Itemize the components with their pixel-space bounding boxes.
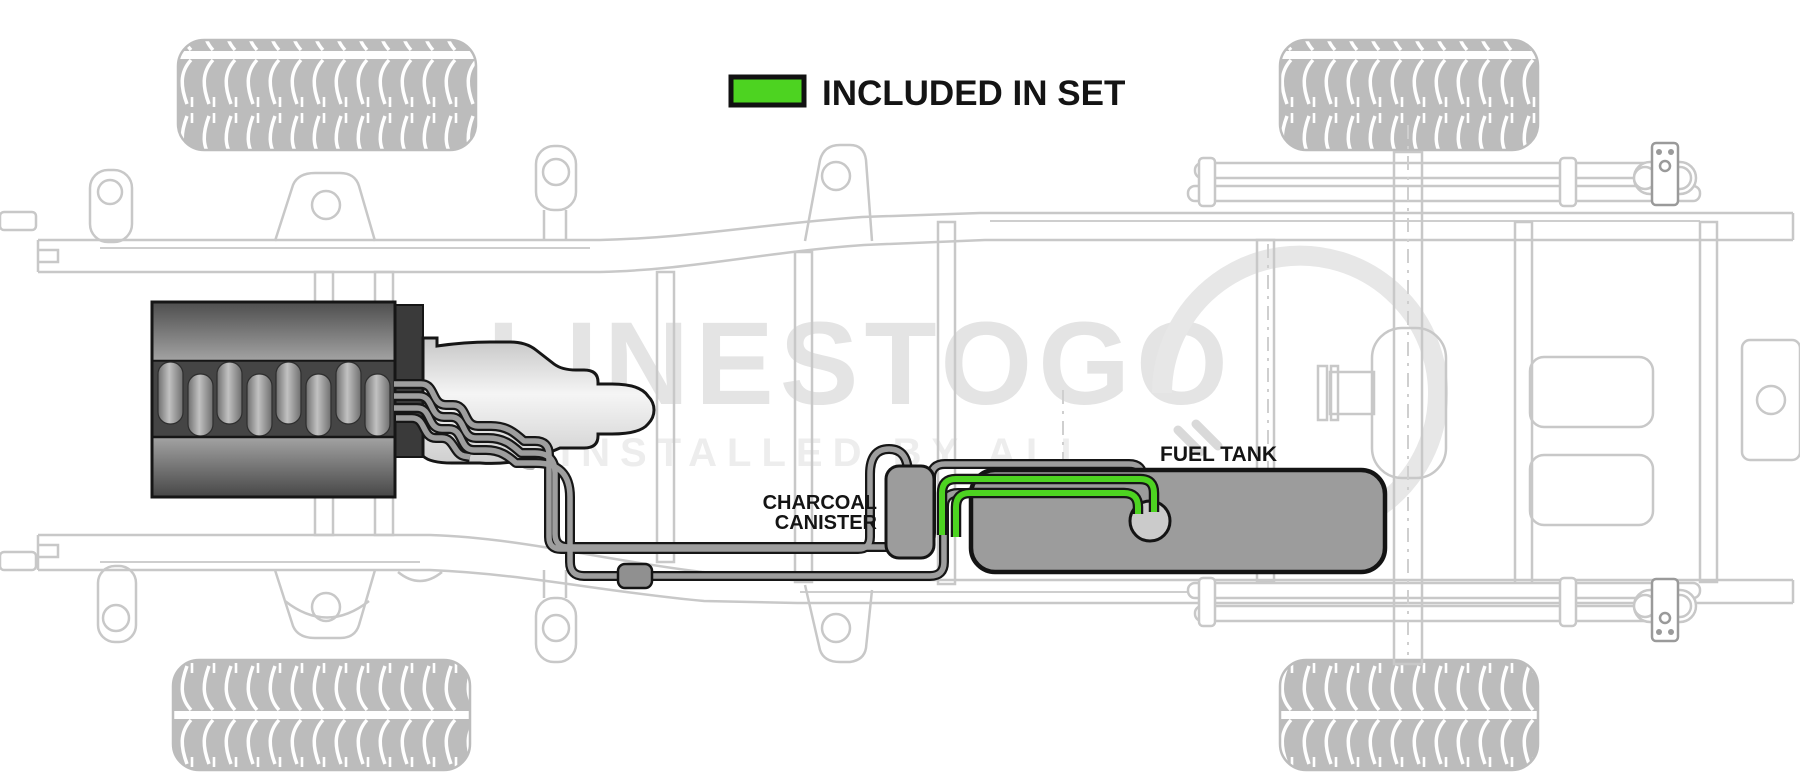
leaf-spring-bottom bbox=[1188, 578, 1700, 641]
charcoal-canister-label-line2: CANISTER bbox=[775, 512, 878, 534]
chassis-fuel-line-diagram-page: LINESTOGO INSTALLED BY ALI bbox=[0, 0, 1800, 784]
tire-front-left-bottom bbox=[173, 660, 470, 770]
rear-box-lower bbox=[1530, 455, 1653, 525]
fuel-tank bbox=[971, 470, 1385, 572]
line-clamp bbox=[618, 564, 652, 588]
tire-front-left bbox=[178, 40, 476, 150]
crossmember-arc bbox=[285, 601, 369, 618]
charcoal-canister bbox=[886, 466, 934, 558]
legend: INCLUDED IN SET bbox=[731, 74, 1125, 113]
leaf-spring-top bbox=[1188, 143, 1700, 206]
crossmember-arc bbox=[398, 572, 442, 581]
crossmember bbox=[1700, 222, 1717, 582]
legend-swatch bbox=[731, 77, 804, 105]
pinion-snout bbox=[1330, 372, 1374, 414]
engine-valve-cover-bottom bbox=[152, 437, 395, 497]
driveshaft-flange bbox=[1331, 366, 1338, 420]
fuel-tank-label: FUEL TANK bbox=[1160, 443, 1277, 466]
engine-valve-cover-top bbox=[152, 302, 395, 361]
rear-box-upper bbox=[1530, 357, 1653, 427]
front-stub bbox=[0, 212, 36, 230]
tire-rear-right-bottom bbox=[1280, 660, 1538, 770]
hitch bbox=[1742, 340, 1800, 460]
driveshaft-flange bbox=[1318, 366, 1327, 420]
charcoal-canister-label-line1: CHARCOAL bbox=[763, 492, 877, 514]
chassis-diagram: LINESTOGO INSTALLED BY ALI bbox=[0, 0, 1800, 784]
legend-label: INCLUDED IN SET bbox=[822, 74, 1125, 113]
engine bbox=[152, 302, 395, 497]
front-stub bbox=[0, 552, 36, 570]
